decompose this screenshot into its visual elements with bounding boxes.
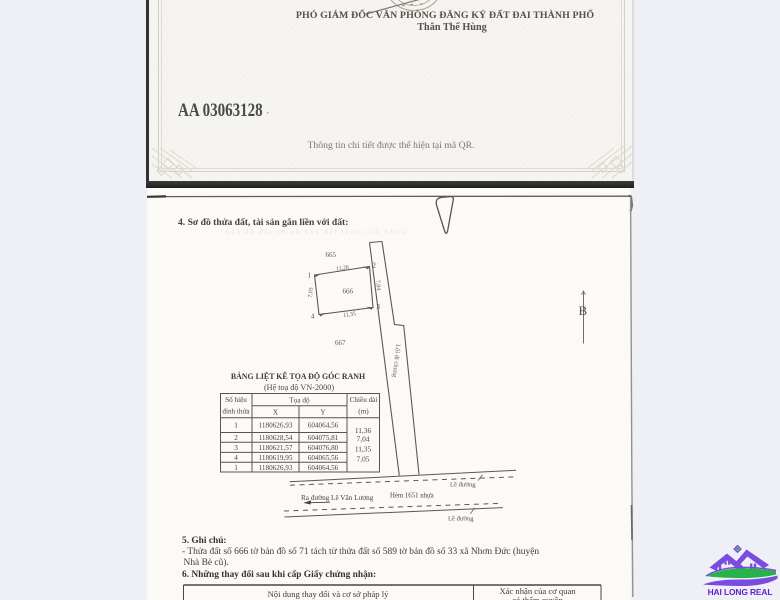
svg-text:(m): (m) [358,408,369,416]
svg-text:B: B [579,303,588,318]
svg-text:X: X [273,409,279,417]
svg-text:11,35: 11,35 [343,311,357,319]
svg-text:Chiều dài: Chiều dài [350,396,378,404]
svg-text:667: 667 [335,339,346,347]
svg-text:1180626,93: 1180626,93 [259,464,293,472]
svg-text:Lề đường: Lề đường [448,516,474,523]
svg-text:1180628,54: 1180628,54 [259,434,293,442]
svg-text:1180621,57: 1180621,57 [259,444,293,452]
svg-text:1180619,95: 1180619,95 [259,454,293,462]
svg-text:604075,81: 604075,81 [308,434,339,442]
svg-text:đỉnh thửa: đỉnh thửa [222,408,250,416]
svg-text:Số hiệu: Số hiệu [225,396,247,404]
svg-text:604064,56: 604064,56 [308,464,339,472]
svg-text:2: 2 [234,434,238,442]
svg-text:3: 3 [234,444,238,452]
svg-text:Ra đường Lê Văn Lương: Ra đường Lê Văn Lương [301,494,374,502]
svg-text:604064,56: 604064,56 [308,422,339,430]
svg-text:1: 1 [234,464,238,472]
svg-text:11,26: 11,26 [336,265,350,273]
svg-text:Lối đi chung: Lối đi chung [391,344,402,379]
svg-text:604065,56: 604065,56 [308,454,339,462]
svg-text:604076,80: 604076,80 [308,444,339,452]
svg-text:Hẻm 1651 nhựa: Hẻm 1651 nhựa [390,493,434,500]
svg-text:Lề đường: Lề đường [450,482,476,489]
svg-text:4: 4 [234,454,238,462]
svg-text:1: 1 [308,273,311,280]
svg-text:7,03: 7,03 [308,287,315,298]
svg-text:Y: Y [320,409,326,417]
svg-text:665: 665 [326,251,337,259]
svg-text:7,04: 7,04 [357,435,370,444]
svg-text:11,35: 11,35 [355,445,372,454]
svg-text:7,05: 7,05 [357,455,370,464]
svg-text:666: 666 [343,288,354,296]
svg-text:1180626,93: 1180626,93 [259,422,293,430]
svg-text:(Hệ toạ độ VN-2000): (Hệ toạ độ VN-2000) [264,383,334,392]
svg-text:1: 1 [234,422,238,430]
svg-text:4: 4 [311,314,315,321]
svg-text:Tọa độ: Tọa độ [289,397,310,405]
svg-text:BẢNG LIỆT KÊ TỌA ĐỘ GÓC RANH: BẢNG LIỆT KÊ TỌA ĐỘ GÓC RANH [231,371,365,381]
